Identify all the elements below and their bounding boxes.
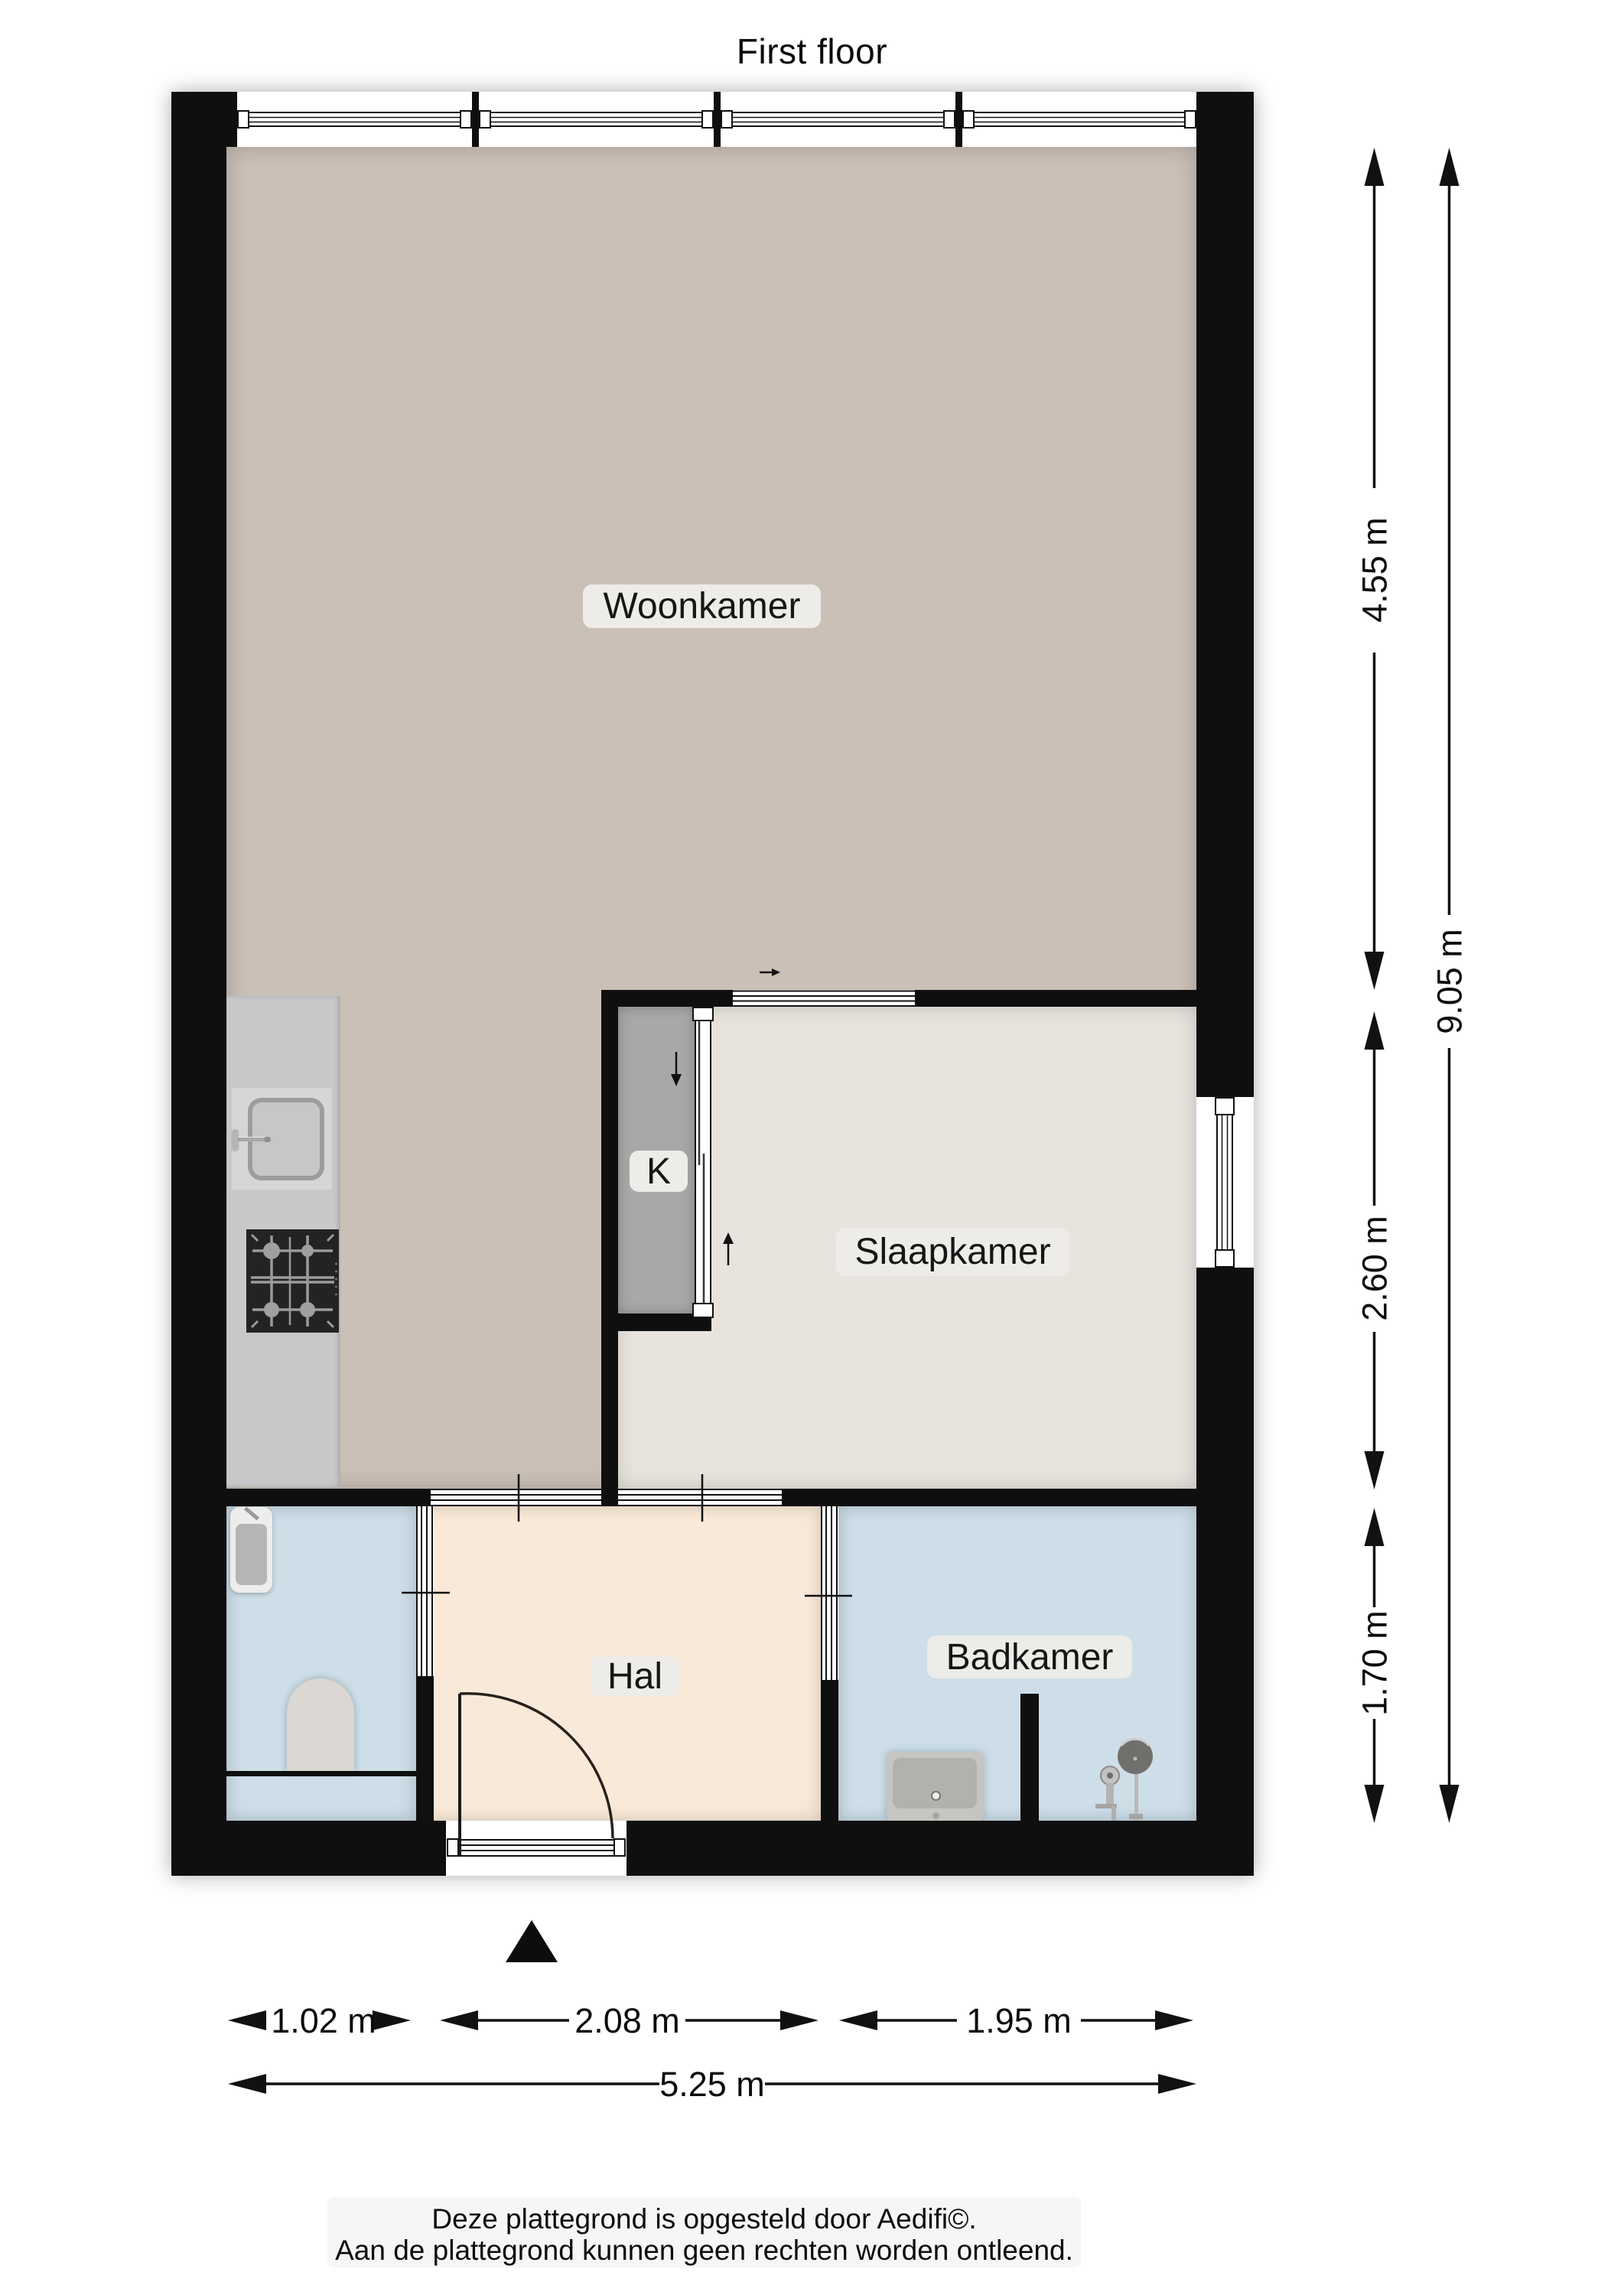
svg-text:1.70 m: 1.70 m (1356, 1610, 1395, 1716)
svg-text:5.25 m: 5.25 m (659, 2065, 765, 2104)
svg-text:9.05 m: 9.05 m (1430, 929, 1469, 1034)
svg-text:1.02 m: 1.02 m (271, 2001, 376, 2040)
svg-text:1.95 m: 1.95 m (966, 2001, 1072, 2040)
svg-text:2.60 m: 2.60 m (1356, 1216, 1395, 1321)
svg-text:2.08 m: 2.08 m (574, 2001, 680, 2040)
svg-text:4.55 m: 4.55 m (1356, 517, 1395, 623)
